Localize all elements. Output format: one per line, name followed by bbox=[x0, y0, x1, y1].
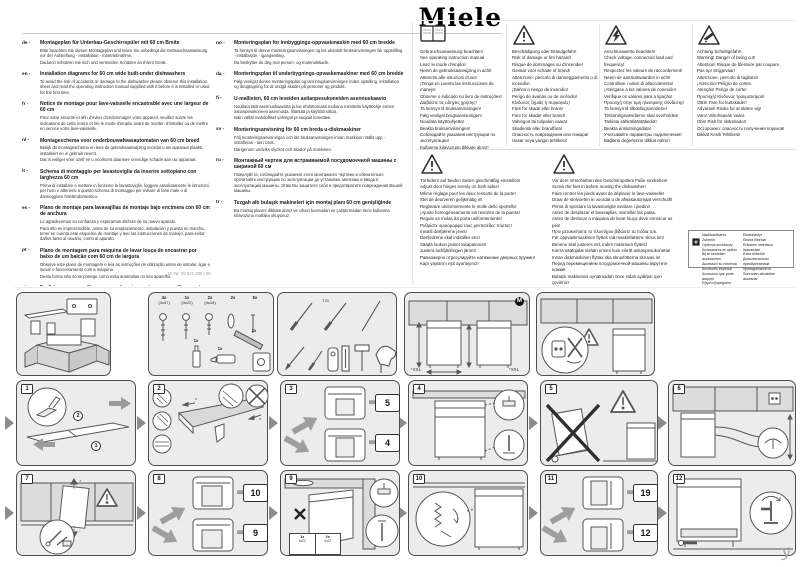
step-number: 11 bbox=[545, 474, 557, 484]
screw-size: (4x22) bbox=[181, 300, 192, 305]
language-code: en - bbox=[22, 71, 37, 96]
goto-step-box: 5 bbox=[375, 394, 400, 412]
language-section: es - Plano de montaje para lavavajillas … bbox=[22, 205, 210, 243]
warning-block-manual: Gebrauchsanweisung beachten!See operatin… bbox=[420, 24, 506, 151]
sequence-chevron-icon bbox=[5, 416, 14, 430]
step-panel-1: 1 2 1 bbox=[16, 380, 136, 466]
substep-marker: 2 bbox=[73, 411, 83, 421]
step-number: 1 bbox=[21, 384, 33, 394]
screw-callout: 1x 4x22 bbox=[290, 534, 316, 554]
warning-cut-icon bbox=[697, 24, 795, 46]
section-title: Plano de montaje para lavavajillas de mo… bbox=[40, 205, 210, 218]
panel-tools: T20 bbox=[277, 292, 397, 376]
warning-triangle-icon bbox=[420, 153, 546, 175]
section-body: Bekijk dit montageschema en lees de gebr… bbox=[40, 145, 210, 162]
section-body: To avoid the risk of accidents or damage… bbox=[40, 79, 210, 95]
section-text: Le agradecemos su confianza y esperamos … bbox=[40, 219, 210, 224]
warning-line: Перед перемещением посудомоечной машины … bbox=[552, 261, 678, 274]
panel-packaging-contents bbox=[16, 292, 111, 376]
screw-size: (4x16) bbox=[204, 300, 215, 305]
fold-line bbox=[416, 20, 796, 21]
screw-label: 2x bbox=[222, 296, 244, 301]
warning-line: Kierrä säätöjalat sisään ennen kuin siir… bbox=[552, 248, 678, 254]
sequence-chevron-icon bbox=[658, 506, 667, 520]
section-title: Notice de montage pour lave-vaisselle en… bbox=[40, 101, 210, 114]
section-divider bbox=[15, 287, 795, 288]
section-text: Пожалуйста, соблюдайте указания этого мо… bbox=[234, 172, 404, 194]
warning-triangle-icon bbox=[512, 24, 598, 46]
step-number: 8 bbox=[153, 474, 165, 484]
step-number: 4 bbox=[413, 384, 425, 394]
section-text: Para ello es imprescindible, antes de su… bbox=[40, 226, 210, 242]
language-section: el - Σχεδιάγραμμα τοποθέτησης για πλυντή… bbox=[22, 285, 210, 286]
fold-line bbox=[412, 22, 413, 284]
step-4-sketch bbox=[409, 381, 529, 467]
section-text: Bitte beachten Sie diesen Montageplan un… bbox=[40, 48, 210, 59]
section-text: Noudata tätä asennuskaaviota ja lue ehdo… bbox=[234, 104, 404, 115]
accessory-column-right: EkstrautstyrEkstra tilbehørErikseen oste… bbox=[743, 233, 790, 265]
tools-sketch bbox=[278, 293, 398, 377]
warning-line: Draai de stelvoeten in voordat u de afwa… bbox=[552, 197, 678, 203]
screw-callout: 2x 4x27 bbox=[316, 534, 341, 554]
section-title: U-mallisten, 60 cm leveiden astianpesuko… bbox=[234, 96, 404, 102]
part-label: 1x bbox=[213, 347, 227, 352]
adjust-plus-label: + bbox=[79, 479, 81, 483]
warning-line: Bulaşık makinesini oynatmadan önce vidal… bbox=[552, 274, 678, 287]
step-number: 2 bbox=[153, 384, 165, 394]
warning-line: Соблюдайте указания инструкции по эксплу… bbox=[420, 132, 506, 145]
warning-lines: Gebrauchsanweisung beachten!See operatin… bbox=[420, 49, 506, 151]
step-panel-9: 9 1x 4x22 2x 4x27 bbox=[280, 470, 400, 556]
step-6-sketch bbox=[669, 381, 797, 467]
language-code: pt - bbox=[22, 248, 37, 280]
warning-line: Attenzione: pericolo di danneggiamento o… bbox=[512, 75, 598, 88]
language-section: fi - U-mallisten, 60 cm leveiden astianp… bbox=[216, 96, 404, 122]
language-code: el - bbox=[22, 285, 37, 286]
screw-qty: 5x bbox=[253, 295, 258, 300]
language-code: tr - bbox=[216, 200, 231, 220]
section-title: Монтажный чертеж для встраиваемой посудо… bbox=[234, 158, 404, 171]
section-title: Monteringsanvisning för 60 cm breda u-di… bbox=[234, 127, 404, 133]
warning-block-cut: Achtung Schnittgefahr!Warning! Danger of… bbox=[697, 24, 795, 138]
fold-line bbox=[692, 24, 693, 146]
step-panel-2: 2 x x bbox=[148, 380, 268, 466]
xxl-label: *XXL bbox=[509, 367, 519, 372]
adjust-minus-label: - bbox=[79, 529, 80, 533]
warning-line: Hasar veya yangın tehlikesi! bbox=[512, 138, 598, 144]
language-code: nl - bbox=[22, 138, 37, 164]
screw-label: 1x(4x22) bbox=[176, 296, 198, 305]
step-panel-4: 4 bbox=[408, 380, 528, 466]
step-12-sketch bbox=[669, 471, 797, 557]
language-section: en - Installation diagrams for 60 cm wid… bbox=[22, 71, 210, 96]
warning-line: Innan diskmaskinen flyttas ska skruvfött… bbox=[552, 255, 678, 261]
warning-line: Dikkat Kesik Tehlikesi! bbox=[697, 132, 795, 138]
section-text: Därigenom undviks olyckor och skador på … bbox=[234, 147, 404, 152]
section-body: Noudata tätä asennuskaaviota ja lue ehdo… bbox=[234, 104, 404, 121]
sequence-chevron-icon bbox=[137, 506, 146, 520]
warning-line: Осторожно: опасность получения порезов! bbox=[697, 126, 795, 132]
section-text: Näin vältät mahdolliset vahingot ja suoj… bbox=[234, 115, 404, 120]
intro-column-1: de - Montageplan für Unterbau-Geschirrsp… bbox=[22, 40, 210, 286]
miele-mark: M bbox=[515, 297, 524, 306]
step-panel-10: 10 bbox=[408, 470, 528, 556]
part-label: 1x bbox=[189, 339, 203, 344]
language-section: sv - Monteringsanvisning för 60 cm breda… bbox=[216, 127, 404, 153]
step-2-sketch bbox=[149, 381, 269, 467]
section-title: Tezgah altı bulaşık makineleri için mont… bbox=[234, 200, 404, 206]
language-code: de - bbox=[22, 40, 37, 66]
accessory-column-left: Nachkaufbares ZubehörOptional accessoryA… bbox=[692, 233, 739, 265]
niche-sketch bbox=[405, 293, 531, 377]
section-body: Pour votre sécurité et afin d'éviter d'e… bbox=[40, 115, 210, 131]
step-number: 6 bbox=[673, 384, 685, 394]
sequence-chevron-icon bbox=[269, 506, 278, 520]
warning-block-electrical: Anschlusswerte beachten!Check voltage, c… bbox=[604, 24, 690, 145]
section-title: Montageschema voor onderbouwafwasautomat… bbox=[40, 138, 210, 144]
accessory-line: Acessório que pode adquirir bbox=[702, 272, 739, 282]
section-text: Følg venligst denne monteringsplan og læ… bbox=[234, 79, 404, 90]
step-10-sketch bbox=[409, 471, 529, 557]
warning-line: Равномерно отрегулируйте натяжение дверн… bbox=[420, 255, 546, 261]
section-title: Plano de montagem para máquina de lavar … bbox=[40, 248, 210, 261]
language-code: sv - bbox=[216, 127, 231, 153]
screw-size: 4x22 bbox=[290, 539, 315, 543]
fold-line bbox=[599, 24, 600, 146]
screw-size: (4x37) bbox=[158, 300, 169, 305]
accessory-line: Nachkaufbares Zubehör bbox=[702, 233, 739, 243]
accessory-icon bbox=[692, 233, 700, 286]
section-text: Bu montaj planını dikkate alınız ve ciha… bbox=[234, 208, 404, 219]
fold-line bbox=[506, 24, 507, 146]
substep-marker: 1 bbox=[91, 441, 101, 451]
language-section: nl - Montageschema voor onderbouwafwasau… bbox=[22, 138, 210, 164]
section-text: Bekijk dit montageschema en lees de gebr… bbox=[40, 145, 210, 156]
warning-line: Før oppvaskmaskinen flyttes må maskinføt… bbox=[552, 235, 678, 241]
section-title: Installation diagrams for 60 cm wide bui… bbox=[40, 71, 210, 77]
warning-lightning-icon bbox=[604, 24, 690, 46]
section-body: Følg venligst denne monteringsplan og læ… bbox=[234, 79, 404, 90]
section-body: Prima di installare e mettere in funzion… bbox=[40, 183, 210, 199]
accessory-line: Erikseen ostettava lisävaruste bbox=[743, 243, 790, 253]
step-7-sketch bbox=[17, 471, 137, 557]
warning-block-fire: Beschädigung oder Brandgefahr!Risk of da… bbox=[512, 24, 598, 145]
language-code: ru - bbox=[216, 158, 231, 195]
language-section: fr - Notice de montage pour lave-vaissel… bbox=[22, 101, 210, 132]
warning-line: Antes de deslocar a máquina de lavar lou… bbox=[552, 216, 678, 229]
goto-step-box: 19 bbox=[633, 484, 658, 502]
part-qty: 1x bbox=[194, 338, 199, 343]
section-text: Dadurch schützen Sie sich und vermeiden … bbox=[40, 60, 210, 65]
section-title: Σχεδιάγραμμα τοποθέτησης για πλυντήρια π… bbox=[40, 285, 210, 286]
sequence-chevron-icon bbox=[137, 416, 146, 430]
document-number: M.-Nr. 09 521 280 / 00 bbox=[168, 271, 211, 276]
dimension-label: x bbox=[259, 417, 261, 421]
language-section: no - Monteringsplan for innbyggings-oppv… bbox=[216, 40, 404, 66]
screw-label: 4x(4x37) bbox=[153, 296, 175, 305]
warning-line: Bağlantı değerlerine dikkat ediniz! bbox=[604, 138, 690, 144]
accessory-line: Дополнительно приобретаемые принадлежнос… bbox=[743, 257, 790, 272]
tool-size-label: T20 bbox=[322, 298, 329, 303]
step-number: 10 bbox=[413, 474, 425, 484]
sequence-chevron-icon bbox=[269, 416, 278, 430]
section-body: Bitte beachten Sie diesen Montageplan un… bbox=[40, 48, 210, 65]
step-number: 9 bbox=[285, 474, 297, 484]
packaging-sketch bbox=[17, 293, 112, 377]
warning-block-door-springs: Türfedern auf beiden Seiten gleichmäßig … bbox=[420, 153, 546, 267]
screw-kit-sketch bbox=[149, 293, 275, 377]
step-number: 7 bbox=[21, 474, 33, 484]
section-text: Dat is veiliger voor uzelf en u voorkomt… bbox=[40, 157, 210, 162]
step-1-sketch bbox=[17, 381, 137, 467]
section-body: Пожалуйста, соблюдайте указания этого мо… bbox=[234, 172, 404, 194]
sequence-chevron-icon bbox=[5, 506, 14, 520]
language-section: it - Schema di montaggio per lavastovigl… bbox=[22, 169, 210, 200]
section-title: Monteringsplan for innbyggings-oppvaskma… bbox=[234, 40, 404, 46]
section-text: To avoid the risk of accidents or damage… bbox=[40, 79, 210, 95]
warning-line: Respectez les valeurs de raccordement! bbox=[604, 68, 690, 74]
language-section: ru - Монтажный чертеж для встраиваемой п… bbox=[216, 158, 404, 195]
warning-lines: Beschädigung oder Brandgefahr!Risk of da… bbox=[512, 49, 598, 145]
section-text: Följ monteringsanvisningen och läs bruks… bbox=[234, 135, 404, 146]
step-panel-6: 6 bbox=[668, 380, 796, 466]
step-panel-11: 11 19 12 bbox=[540, 470, 658, 556]
language-section: da - Monteringsplan til underbygnings-op… bbox=[216, 71, 404, 91]
language-code: no - bbox=[216, 40, 231, 66]
warning-line: Kullanma kılavuzunu dikkate alınız! bbox=[420, 145, 506, 151]
panel-socket-warning bbox=[536, 292, 655, 376]
step-panel-12: 12 bbox=[668, 470, 796, 556]
warning-lines: Anschlusswerte beachten!Check voltage, c… bbox=[604, 49, 690, 145]
section-text: Ta hensyn til denne monteringsanvisninge… bbox=[234, 48, 404, 59]
section-title: Montageplan für Unterbau-Geschirrspüler … bbox=[40, 40, 210, 46]
screw-callout-box: 1x 4x22 2x 4x27 bbox=[289, 533, 341, 555]
language-code: fr - bbox=[22, 101, 37, 132]
warning-triangle-icon bbox=[552, 153, 678, 175]
section-text: Prima di installare e mettere in funzion… bbox=[40, 183, 210, 199]
accessory-box: Nachkaufbares ZubehörOptional accessoryA… bbox=[688, 230, 794, 268]
intro-column-2: no - Monteringsplan for innbyggings-oppv… bbox=[216, 40, 404, 286]
warning-lines: Vor dem Verschieben des Geschirrspülers … bbox=[552, 178, 678, 286]
accessory-lines-left: Nachkaufbares ZubehörOptional accessoryA… bbox=[702, 233, 739, 286]
warning-block-feet: Vor dem Verschieben des Geschirrspülers … bbox=[552, 153, 678, 286]
accessory-line: Bij te bestellen accessoires bbox=[702, 252, 739, 262]
step-panel-7: 7 + - bbox=[16, 470, 136, 556]
step-panel-5: 5 bbox=[540, 380, 658, 466]
accessory-line: Sonradan alınabilen aksesuar bbox=[743, 272, 790, 282]
socket-sketch bbox=[537, 293, 656, 377]
panel-niche-dimensions: M *XXL *XXL bbox=[404, 292, 530, 376]
sequence-chevron-icon bbox=[529, 506, 538, 520]
part-qty: 1x bbox=[218, 346, 223, 351]
section-title: Monteringsplan til underbygnings-opvaske… bbox=[234, 71, 404, 77]
warning-lines: Türfedern auf beiden Seiten gleichmäßig … bbox=[420, 178, 546, 267]
screw-size: 4x27 bbox=[316, 539, 341, 543]
step-number: 12 bbox=[673, 474, 685, 484]
panel-screw-kit: 4x(4x37) 1x(4x22) 2x(4x16) 2x 5x 1x 1x 2… bbox=[148, 292, 274, 376]
sequence-chevron-icon bbox=[529, 416, 538, 430]
step-panel-3: 3 5 4 bbox=[280, 380, 400, 466]
language-code: da - bbox=[216, 71, 231, 91]
section-text: Pour votre sécurité et afin d'éviter d'e… bbox=[40, 115, 210, 131]
step-5-sketch bbox=[541, 381, 659, 467]
part-qty: 2x bbox=[252, 328, 257, 333]
goto-step-box: 9 bbox=[243, 524, 268, 542]
warning-line: ¡Tenga en cuenta las instrucciones de ma… bbox=[420, 81, 506, 94]
goto-step-box: 10 bbox=[243, 484, 268, 502]
section-title: Schema di montaggio per lavastoviglie da… bbox=[40, 169, 210, 182]
section-body: Bu montaj planını dikkate alınız ve ciha… bbox=[234, 208, 404, 219]
accessory-line: Εξτρά εξαρτήματα bbox=[702, 281, 739, 286]
dimension-label: x bbox=[195, 397, 197, 401]
step-number: 3 bbox=[285, 384, 297, 394]
screw-label: 2x(4x16) bbox=[199, 296, 221, 305]
language-section: tr - Tezgah altı bulaşık makineleri için… bbox=[216, 200, 404, 220]
section-body: Följ monteringsanvisningen och läs bruks… bbox=[234, 135, 404, 152]
goto-step-box: 4 bbox=[375, 434, 400, 452]
warning-line: Check voltage, connected load and freque… bbox=[604, 55, 690, 68]
warning-line: Kapı yaylarını eşit ayarlayınız! bbox=[420, 261, 546, 267]
section-body: Le agradecemos su confianza y esperamos … bbox=[40, 219, 210, 242]
installation-sheet: Miele de - Montageplan für Unterbau-Gesc… bbox=[0, 0, 802, 567]
part-label: 2x bbox=[247, 329, 261, 334]
xxl-label: *XXL bbox=[411, 367, 421, 372]
language-code: it - bbox=[22, 169, 37, 200]
sequence-chevron-icon bbox=[658, 416, 667, 430]
goto-step-box: 12 bbox=[633, 524, 658, 542]
language-code: es - bbox=[22, 205, 37, 243]
screw-qty: 2x bbox=[231, 295, 236, 300]
language-code: fi - bbox=[216, 96, 231, 122]
screw-label: 5x bbox=[244, 296, 266, 301]
open-book-icon bbox=[420, 24, 506, 46]
section-body: Ta hensyn til denne monteringsanvisninge… bbox=[234, 48, 404, 65]
section-text: Da beskytter du deg mot person- og mater… bbox=[234, 60, 404, 65]
step-panel-8: 8 10 9 bbox=[148, 470, 268, 556]
step-number: 5 bbox=[545, 384, 557, 394]
language-section: de - Montageplan für Unterbau-Geschirrsp… bbox=[22, 40, 210, 66]
warning-lines: Achtung Schnittgefahr!Warning! Danger of… bbox=[697, 49, 795, 138]
